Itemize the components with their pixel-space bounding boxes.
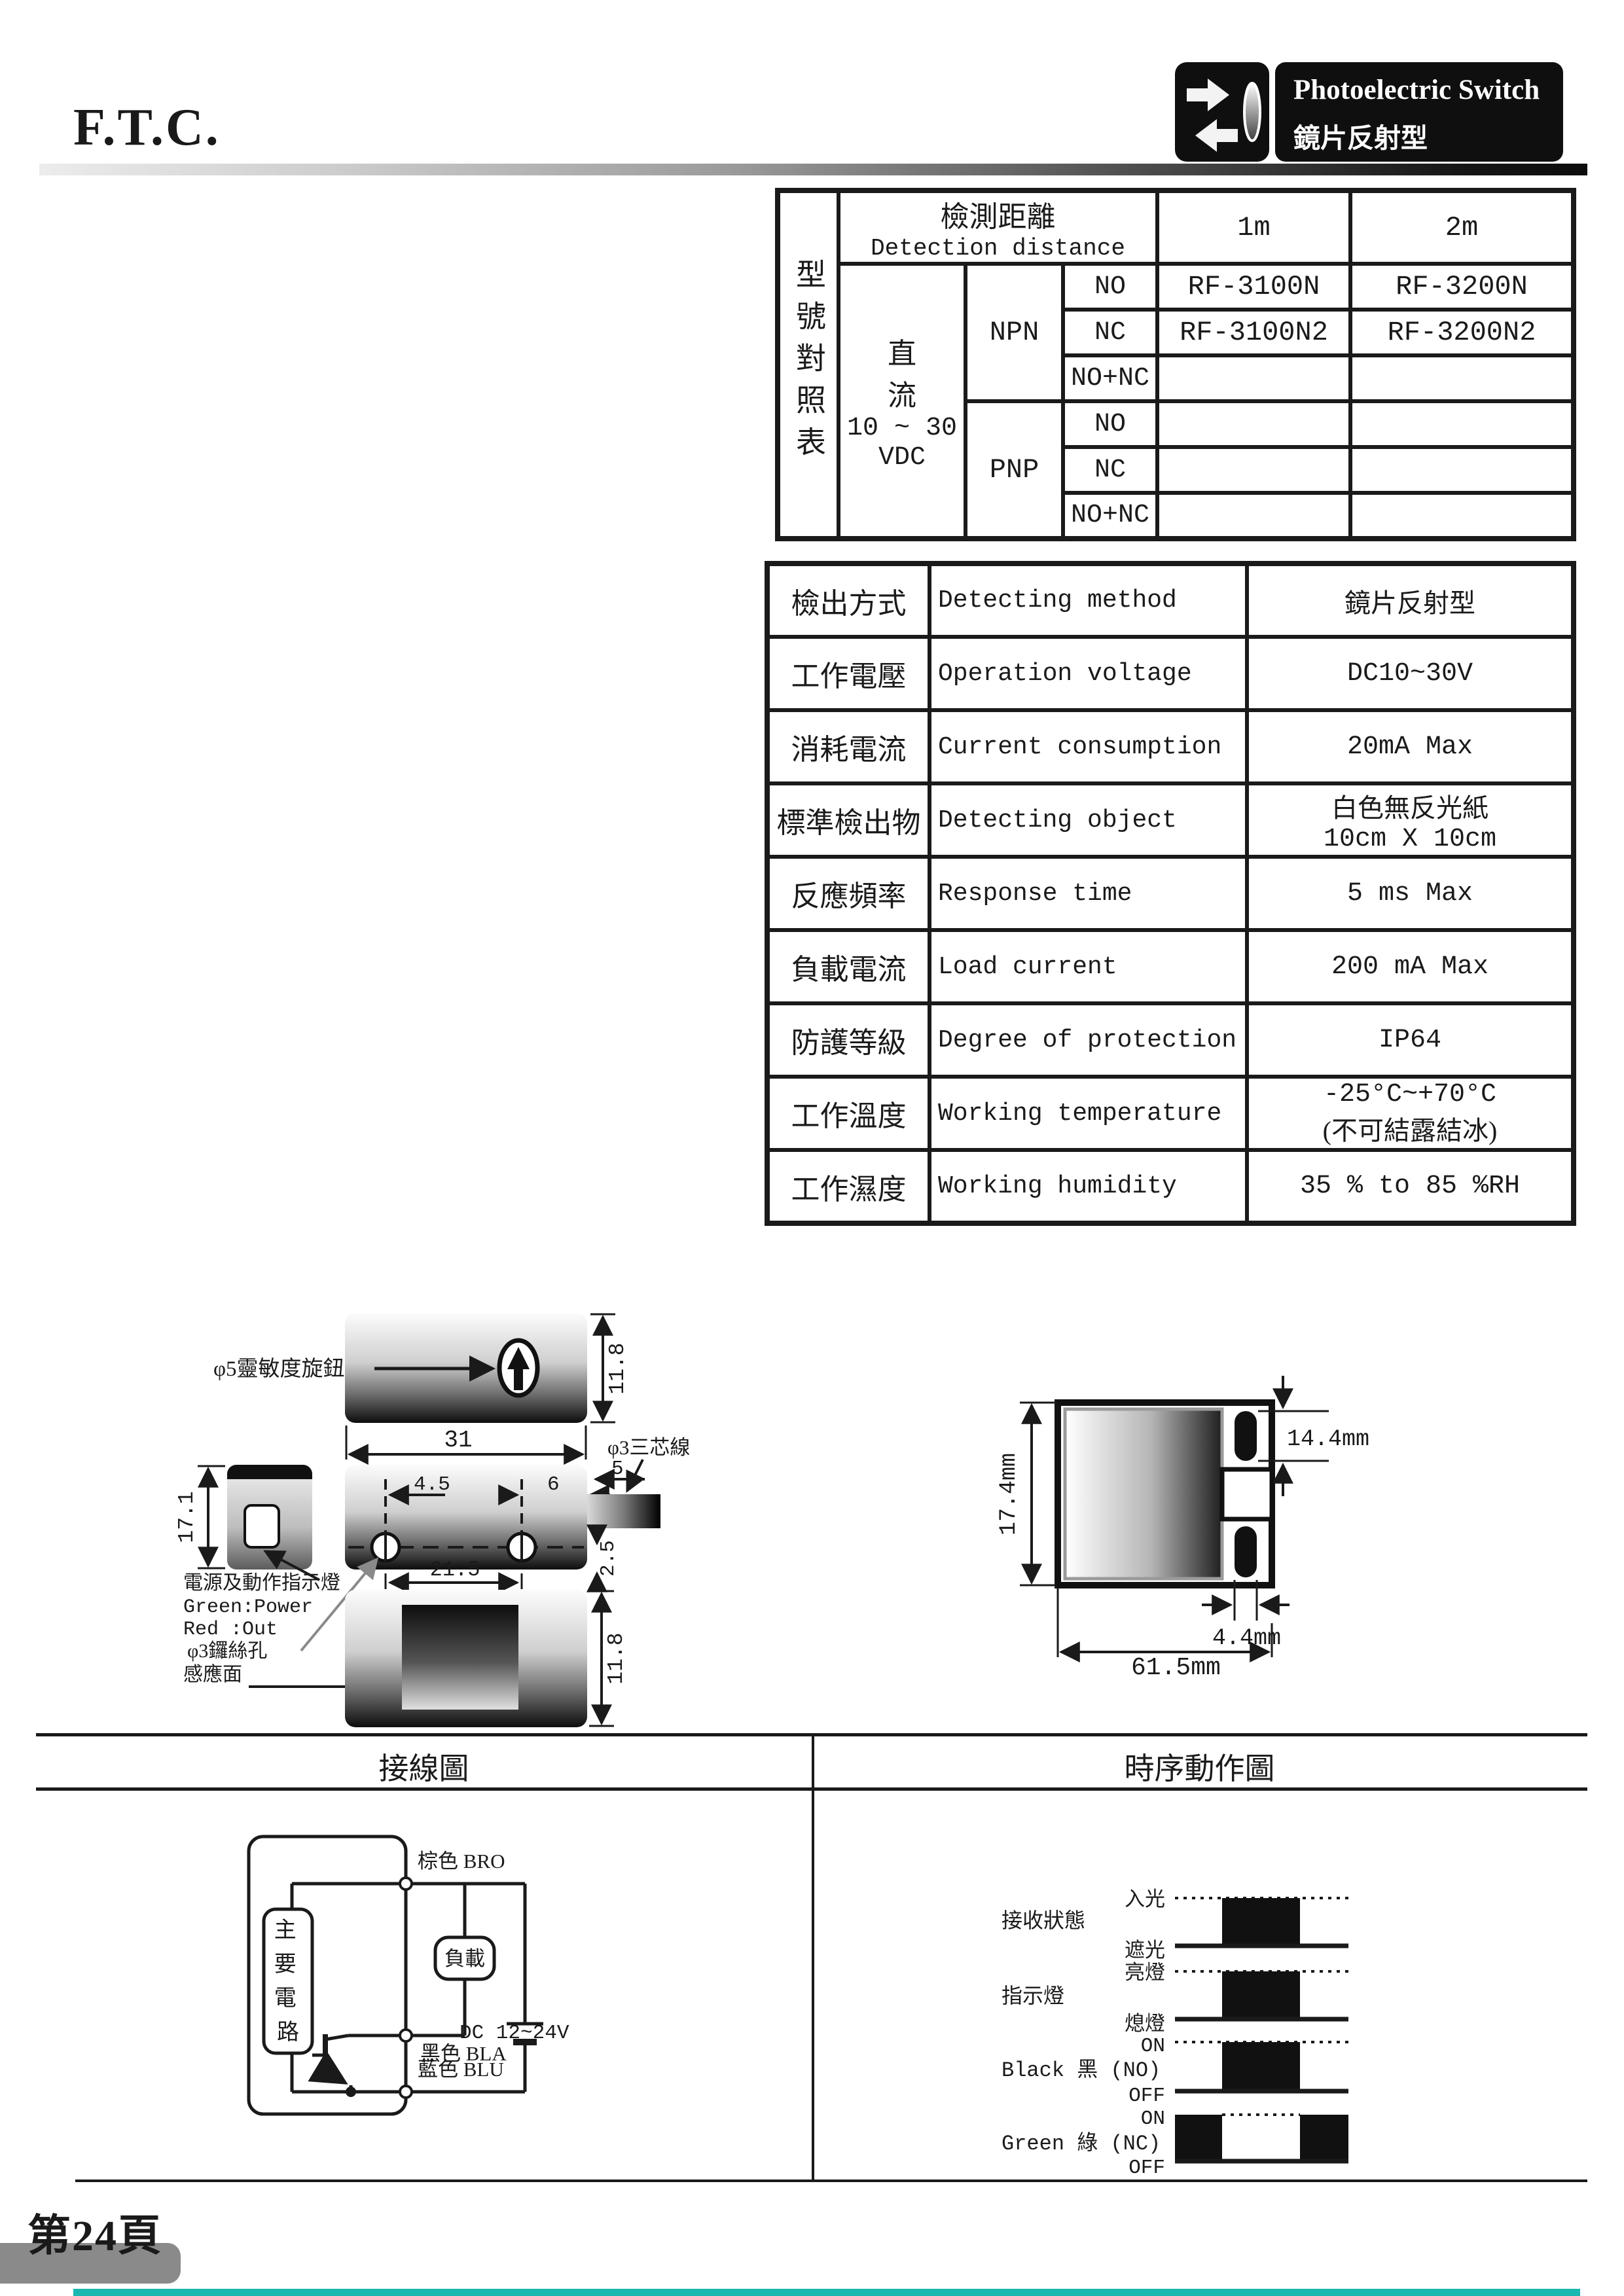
spec-cn: 檢出方式 bbox=[767, 564, 929, 637]
dim-61_5mm: 61.5mm bbox=[1131, 1654, 1221, 1676]
model-cell bbox=[1157, 447, 1350, 493]
col-1m: 1m bbox=[1157, 190, 1350, 264]
dim-17_4mm: 17.4mm bbox=[996, 1453, 1022, 1535]
timing-row-label: Black 黑 (NO) bbox=[1001, 2058, 1161, 2083]
svg-text:熄燈: 熄燈 bbox=[1125, 2012, 1165, 2035]
model-cell bbox=[1157, 493, 1350, 539]
sensor-dimension-drawing: φ5靈敏度旋鈕 11.8 31 4.5 6 5 φ3三芯線 2 bbox=[157, 1309, 720, 1741]
output-type: NO bbox=[1063, 264, 1157, 310]
spec-en: Response time bbox=[929, 857, 1247, 930]
svg-text:ON: ON bbox=[1141, 2035, 1165, 2058]
supply-label: DC 12~24V bbox=[460, 2022, 569, 2045]
model-cell: RF-3100N bbox=[1157, 264, 1350, 310]
pulse bbox=[1175, 2115, 1222, 2161]
spec-cn: 消耗電流 bbox=[767, 710, 929, 783]
cable-label: φ3三芯線 bbox=[607, 1436, 690, 1459]
dim-31: 31 bbox=[444, 1427, 472, 1454]
output-type: NO bbox=[1063, 401, 1157, 447]
svg-text:主 要 電 路: 主 要 電 路 bbox=[274, 1918, 302, 2045]
detection-distance-header: 檢測距離 Detection distance bbox=[839, 190, 1157, 264]
spec-cn: 工作電壓 bbox=[767, 637, 929, 710]
spec-value: 鏡片反射型 bbox=[1247, 564, 1574, 637]
indicator-red-label: Red :Out bbox=[183, 1619, 278, 1641]
header-divider bbox=[39, 164, 1587, 175]
brown-wire-label: 棕色 BRO bbox=[418, 1850, 505, 1873]
spec-cn: 負載電流 bbox=[767, 930, 929, 1003]
model-cell bbox=[1350, 493, 1574, 539]
model-cell bbox=[1350, 401, 1574, 447]
load-label: 負載 bbox=[444, 1947, 485, 1970]
dim-4_5: 4.5 bbox=[414, 1473, 450, 1496]
model-cell bbox=[1350, 447, 1574, 493]
spec-cn: 標準檢出物 bbox=[767, 783, 929, 857]
badge-title: Photoelectric Switch bbox=[1293, 74, 1540, 106]
pulse bbox=[1222, 1971, 1300, 2019]
spec-en: Current consumption bbox=[929, 710, 1247, 783]
spec-value: 35 % to 85 %RH bbox=[1247, 1150, 1574, 1223]
blue-wire-label: 藍色 BLU bbox=[418, 2058, 504, 2081]
wiring-diagram: 主 要 電 路 棕色 BRO 負載 黑色 BLA 藍色 BLU bbox=[242, 1826, 674, 2121]
svg-text:ON: ON bbox=[1141, 2108, 1165, 2130]
badge-title-box: Photoelectric Switch 鏡片反射型 bbox=[1275, 62, 1563, 162]
pulse bbox=[1222, 2042, 1300, 2091]
datasheet-page: F.T.C. Photoelectric Switch 鏡片反射型 型號對照表 bbox=[0, 0, 1624, 2296]
company-logo: F.T.C. bbox=[73, 98, 221, 158]
svg-text:入光: 入光 bbox=[1125, 1888, 1165, 1910]
spec-value: 200 mA Max bbox=[1247, 930, 1574, 1003]
power-cell: 直 流 10 ~ 30 VDC bbox=[839, 264, 965, 539]
reflector-dimension-drawing: 17.4mm 14.4mm 4.4mm 61.5mm bbox=[982, 1361, 1407, 1676]
wiring-section-title: 接線圖 bbox=[36, 1745, 812, 1788]
svg-text:遮光: 遮光 bbox=[1125, 1939, 1165, 1962]
dim-4_4mm: 4.4mm bbox=[1212, 1625, 1281, 1651]
spec-en: Detecting method bbox=[929, 564, 1247, 637]
model-cell bbox=[1157, 355, 1350, 401]
dim-17_1: 17.1 bbox=[175, 1491, 199, 1543]
output-type: NC bbox=[1063, 310, 1157, 355]
screw-hole-label: φ3鑼絲孔 bbox=[187, 1640, 267, 1662]
spec-cn: 防護等級 bbox=[767, 1003, 929, 1077]
reflector-mirror bbox=[1065, 1409, 1222, 1579]
mount-slot-icon bbox=[1235, 1526, 1257, 1577]
model-cell: RF-3200N2 bbox=[1350, 310, 1574, 355]
pulse bbox=[1222, 1898, 1300, 1946]
dim-6: 6 bbox=[547, 1473, 560, 1496]
dim-14_4mm: 14.4mm bbox=[1287, 1426, 1369, 1452]
timing-section-title: 時序動作圖 bbox=[812, 1745, 1587, 1788]
badge-arrows-icon bbox=[1175, 62, 1269, 162]
spec-cn: 工作濕度 bbox=[767, 1150, 929, 1223]
timing-row-label: Green 綠 (NC) bbox=[1001, 2131, 1161, 2156]
svg-text:OFF: OFF bbox=[1128, 2157, 1165, 2179]
col-2m: 2m bbox=[1350, 190, 1574, 264]
spec-value: IP64 bbox=[1247, 1003, 1574, 1077]
pulse bbox=[1300, 2115, 1348, 2161]
timing-diagram: 接收狀態 入光 遮光 指示燈 亮燈 熄燈 Black 黑 (NO) ON OFF… bbox=[949, 1865, 1407, 2179]
dim-11_8-top: 11.8 bbox=[605, 1342, 630, 1394]
spec-value: DC10~30V bbox=[1247, 637, 1574, 710]
timing-row-label: 指示燈 bbox=[1001, 1984, 1064, 2007]
footer-accent-bar bbox=[73, 2289, 1580, 2296]
dim-2_5: 2.5 bbox=[597, 1540, 620, 1577]
indicator-green-label: Green:Power bbox=[183, 1596, 313, 1619]
dim-5: 5 bbox=[611, 1458, 624, 1480]
spec-value: 5 ms Max bbox=[1247, 857, 1574, 930]
svg-text:亮燈: 亮燈 bbox=[1125, 1961, 1165, 1984]
model-cell: RF-3100N2 bbox=[1157, 310, 1350, 355]
mount-slot-icon bbox=[1235, 1411, 1257, 1461]
output-type: NO+NC bbox=[1063, 355, 1157, 401]
svg-text:OFF: OFF bbox=[1128, 2085, 1165, 2108]
pnp-cell: PNP bbox=[965, 401, 1063, 539]
model-table: 型號對照表 檢測距離 Detection distance 1m 2m 直 流 … bbox=[775, 188, 1576, 541]
spec-cn: 工作溫度 bbox=[767, 1077, 929, 1150]
page-number: 第24頁 bbox=[27, 2200, 162, 2263]
badge-subtitle: 鏡片反射型 bbox=[1293, 116, 1428, 155]
spec-en: Working temperature bbox=[929, 1077, 1247, 1150]
spec-value: -25°C~+70°C (不可結露結冰) bbox=[1247, 1077, 1574, 1150]
sensing-face-label: 感應面 bbox=[183, 1664, 242, 1685]
spec-en: Load current bbox=[929, 930, 1247, 1003]
sensing-window bbox=[402, 1605, 518, 1710]
output-type: NO+NC bbox=[1063, 493, 1157, 539]
model-cell bbox=[1350, 355, 1574, 401]
spec-en: Detecting object bbox=[929, 783, 1247, 857]
section-divider bbox=[812, 1733, 814, 2181]
model-cell bbox=[1157, 401, 1350, 447]
timing-row-label: 接收狀態 bbox=[1001, 1909, 1085, 1932]
npn-cell: NPN bbox=[965, 264, 1063, 401]
spec-value: 20mA Max bbox=[1247, 710, 1574, 783]
knob-label: φ5靈敏度旋鈕 bbox=[213, 1357, 345, 1381]
spec-cn: 反應頻率 bbox=[767, 857, 929, 930]
dim-21_5: 21.5 bbox=[430, 1558, 480, 1582]
spec-table: 檢出方式 Detecting method 鏡片反射型 工作電壓 Operati… bbox=[765, 561, 1576, 1226]
cable bbox=[587, 1494, 660, 1528]
spec-en: Operation voltage bbox=[929, 637, 1247, 710]
indicator-label: 電源及動作指示燈 bbox=[183, 1572, 340, 1594]
spec-value: 白色無反光紙 10cm X 10cm bbox=[1247, 783, 1574, 857]
spec-en: Degree of protection bbox=[929, 1003, 1247, 1077]
spec-en: Working humidity bbox=[929, 1150, 1247, 1223]
dim-11_8-bottom: 11.8 bbox=[604, 1632, 628, 1684]
section-border-bottom bbox=[75, 2179, 1587, 2182]
indicator-window-icon bbox=[245, 1505, 279, 1547]
output-type: NC bbox=[1063, 447, 1157, 493]
model-cell: RF-3200N bbox=[1350, 264, 1574, 310]
model-table-side-label: 型號對照表 bbox=[778, 190, 839, 539]
